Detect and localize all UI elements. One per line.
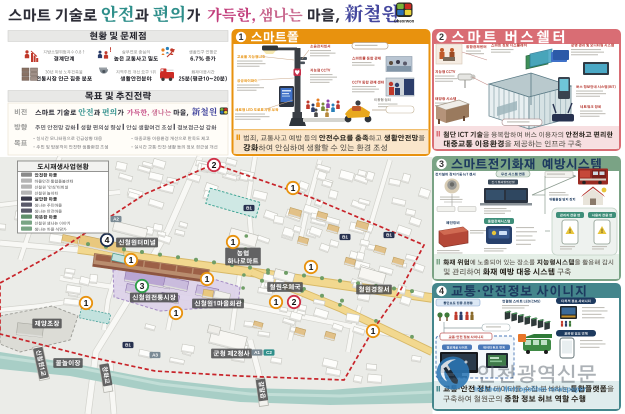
svg-text:B1: B1 <box>386 233 392 238</box>
svg-text:A3: A3 <box>152 353 158 358</box>
svg-text:B1: B1 <box>246 206 252 211</box>
svg-text:4: 4 <box>105 235 110 245</box>
svg-text:Cheorwon: Cheorwon <box>394 19 415 24</box>
svg-text:4: 4 <box>439 286 444 296</box>
svg-text:1: 1 <box>174 308 179 318</box>
svg-text:1: 1 <box>371 326 376 336</box>
svg-text:C2: C2 <box>266 350 272 355</box>
svg-text:A1: A1 <box>254 350 260 355</box>
svg-text:Incheon Metropolitan newspaper: Incheon Metropolitan newspaper <box>474 385 586 394</box>
svg-text:1: 1 <box>129 255 134 265</box>
svg-text:1: 1 <box>84 298 89 308</box>
svg-text:2: 2 <box>212 160 217 170</box>
svg-text:B1: B1 <box>125 343 131 348</box>
svg-text:3: 3 <box>439 159 444 169</box>
svg-text:1: 1 <box>274 297 279 307</box>
svg-text:B1: B1 <box>342 235 348 240</box>
svg-text:3: 3 <box>140 281 145 291</box>
svg-text:1: 1 <box>309 262 314 272</box>
svg-text:1: 1 <box>231 237 236 247</box>
svg-text:1: 1 <box>291 183 296 193</box>
svg-text:1: 1 <box>238 32 243 42</box>
svg-text:A2: A2 <box>113 217 119 222</box>
svg-text:1: 1 <box>205 274 210 284</box>
svg-text:2: 2 <box>292 297 297 307</box>
svg-text:2: 2 <box>439 32 444 42</box>
